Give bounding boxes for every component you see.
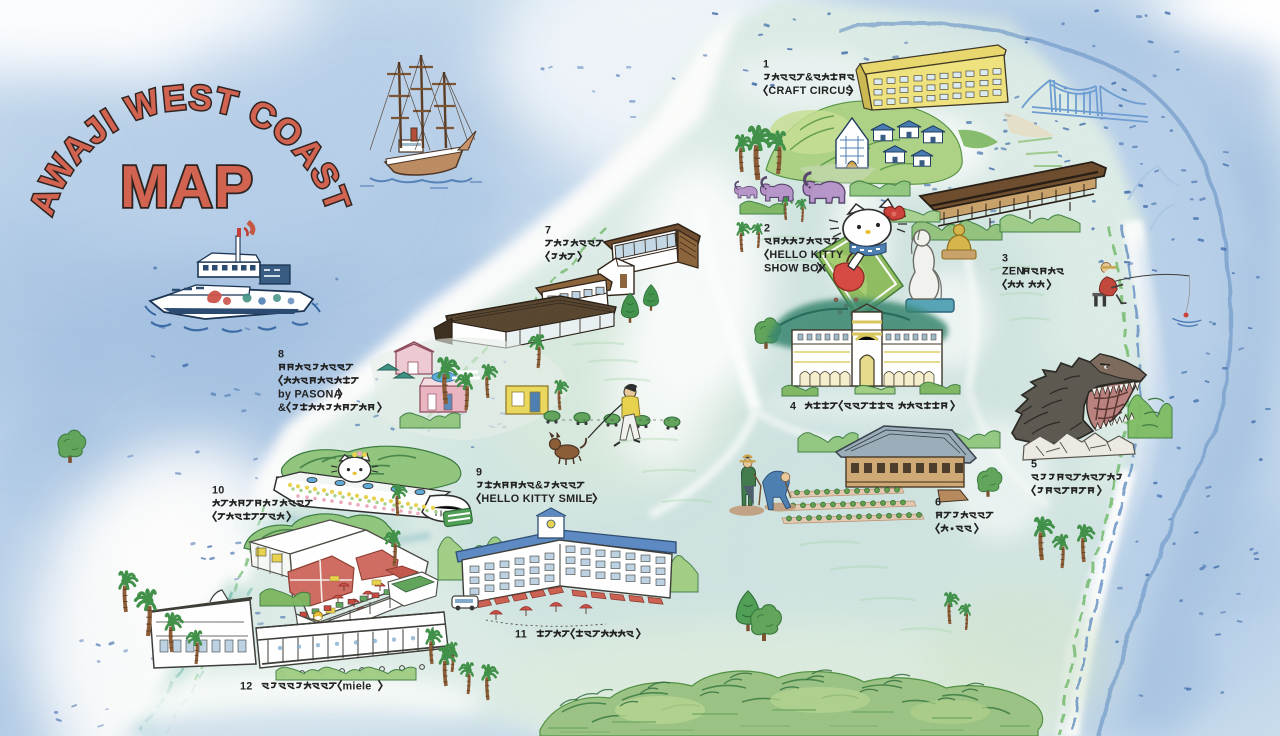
svg-text:ZEN: ZEN xyxy=(1002,266,1025,278)
svg-text:HELLO KITTY: HELLO KITTY xyxy=(769,249,844,261)
svg-text:2: 2 xyxy=(764,222,770,234)
svg-text:5: 5 xyxy=(1031,458,1037,470)
svg-text:CRAFT CIRCUS: CRAFT CIRCUS xyxy=(768,85,853,97)
svg-text:1: 1 xyxy=(763,58,769,70)
svg-text:9: 9 xyxy=(476,466,482,478)
svg-text:11: 11 xyxy=(515,628,527,640)
svg-text:7: 7 xyxy=(545,224,551,236)
svg-text:by PASONA: by PASONA xyxy=(278,389,342,401)
svg-text:6: 6 xyxy=(935,496,941,508)
svg-text:4: 4 xyxy=(790,400,796,412)
svg-text:&: & xyxy=(805,72,813,84)
svg-text:10: 10 xyxy=(212,484,225,496)
svg-text:3: 3 xyxy=(1002,252,1008,264)
svg-text:miele: miele xyxy=(343,680,372,692)
svg-text:8: 8 xyxy=(278,348,284,360)
svg-text:&: & xyxy=(535,480,543,492)
svg-text:&: & xyxy=(278,402,286,414)
svg-text:12: 12 xyxy=(240,680,253,692)
svg-text:HELLO KITTY SMILE: HELLO KITTY SMILE xyxy=(481,493,593,505)
